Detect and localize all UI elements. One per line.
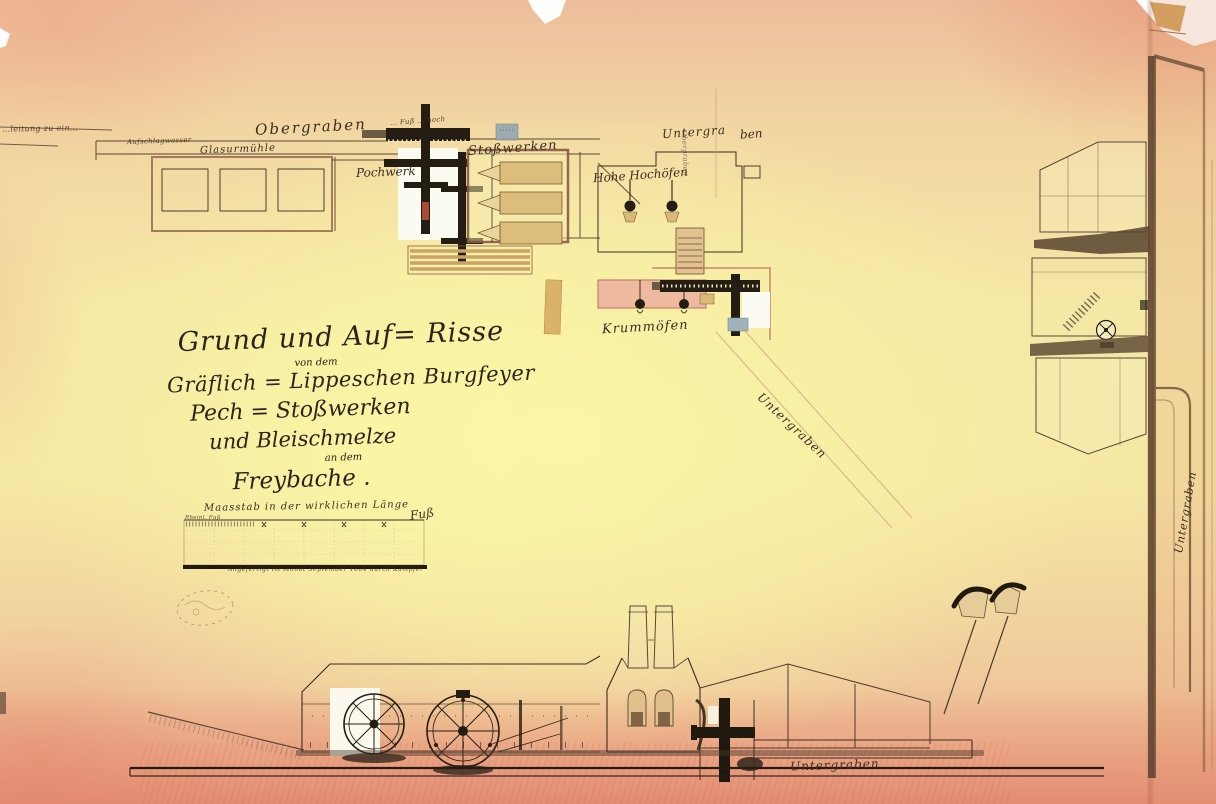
- bottom-elevation: [130, 606, 1104, 782]
- edge-mark-left: [0, 692, 6, 714]
- pochwerk-wheel: [362, 104, 483, 264]
- plan-sheet: …leitung zu ein… Obergraben Aufschlagwas…: [0, 0, 1216, 804]
- scale-left-note: Rheinl. Fuß: [185, 515, 221, 521]
- right-fold-strip: [1154, 0, 1216, 804]
- title-block: Grund und Auf= Risse von dem Gräflich = …: [165, 313, 601, 498]
- label-untergraben-top-right: ben: [740, 126, 763, 142]
- scale-bar: [183, 520, 427, 567]
- label-edge-fragment: …leitung zu ein…: [2, 123, 78, 133]
- torn-edges: [0, 0, 1216, 48]
- fold-shading: [1146, 0, 1154, 804]
- label-pochwerk: Pochwerk: [356, 164, 416, 180]
- seal-sketch: [175, 587, 235, 628]
- scale-caption: Angefertigt im Monat September 1804 durc…: [228, 566, 424, 573]
- blue-patch: [496, 124, 518, 140]
- untergraben-diagonal-channel: [716, 322, 912, 528]
- stamp-hammers: [944, 585, 1024, 714]
